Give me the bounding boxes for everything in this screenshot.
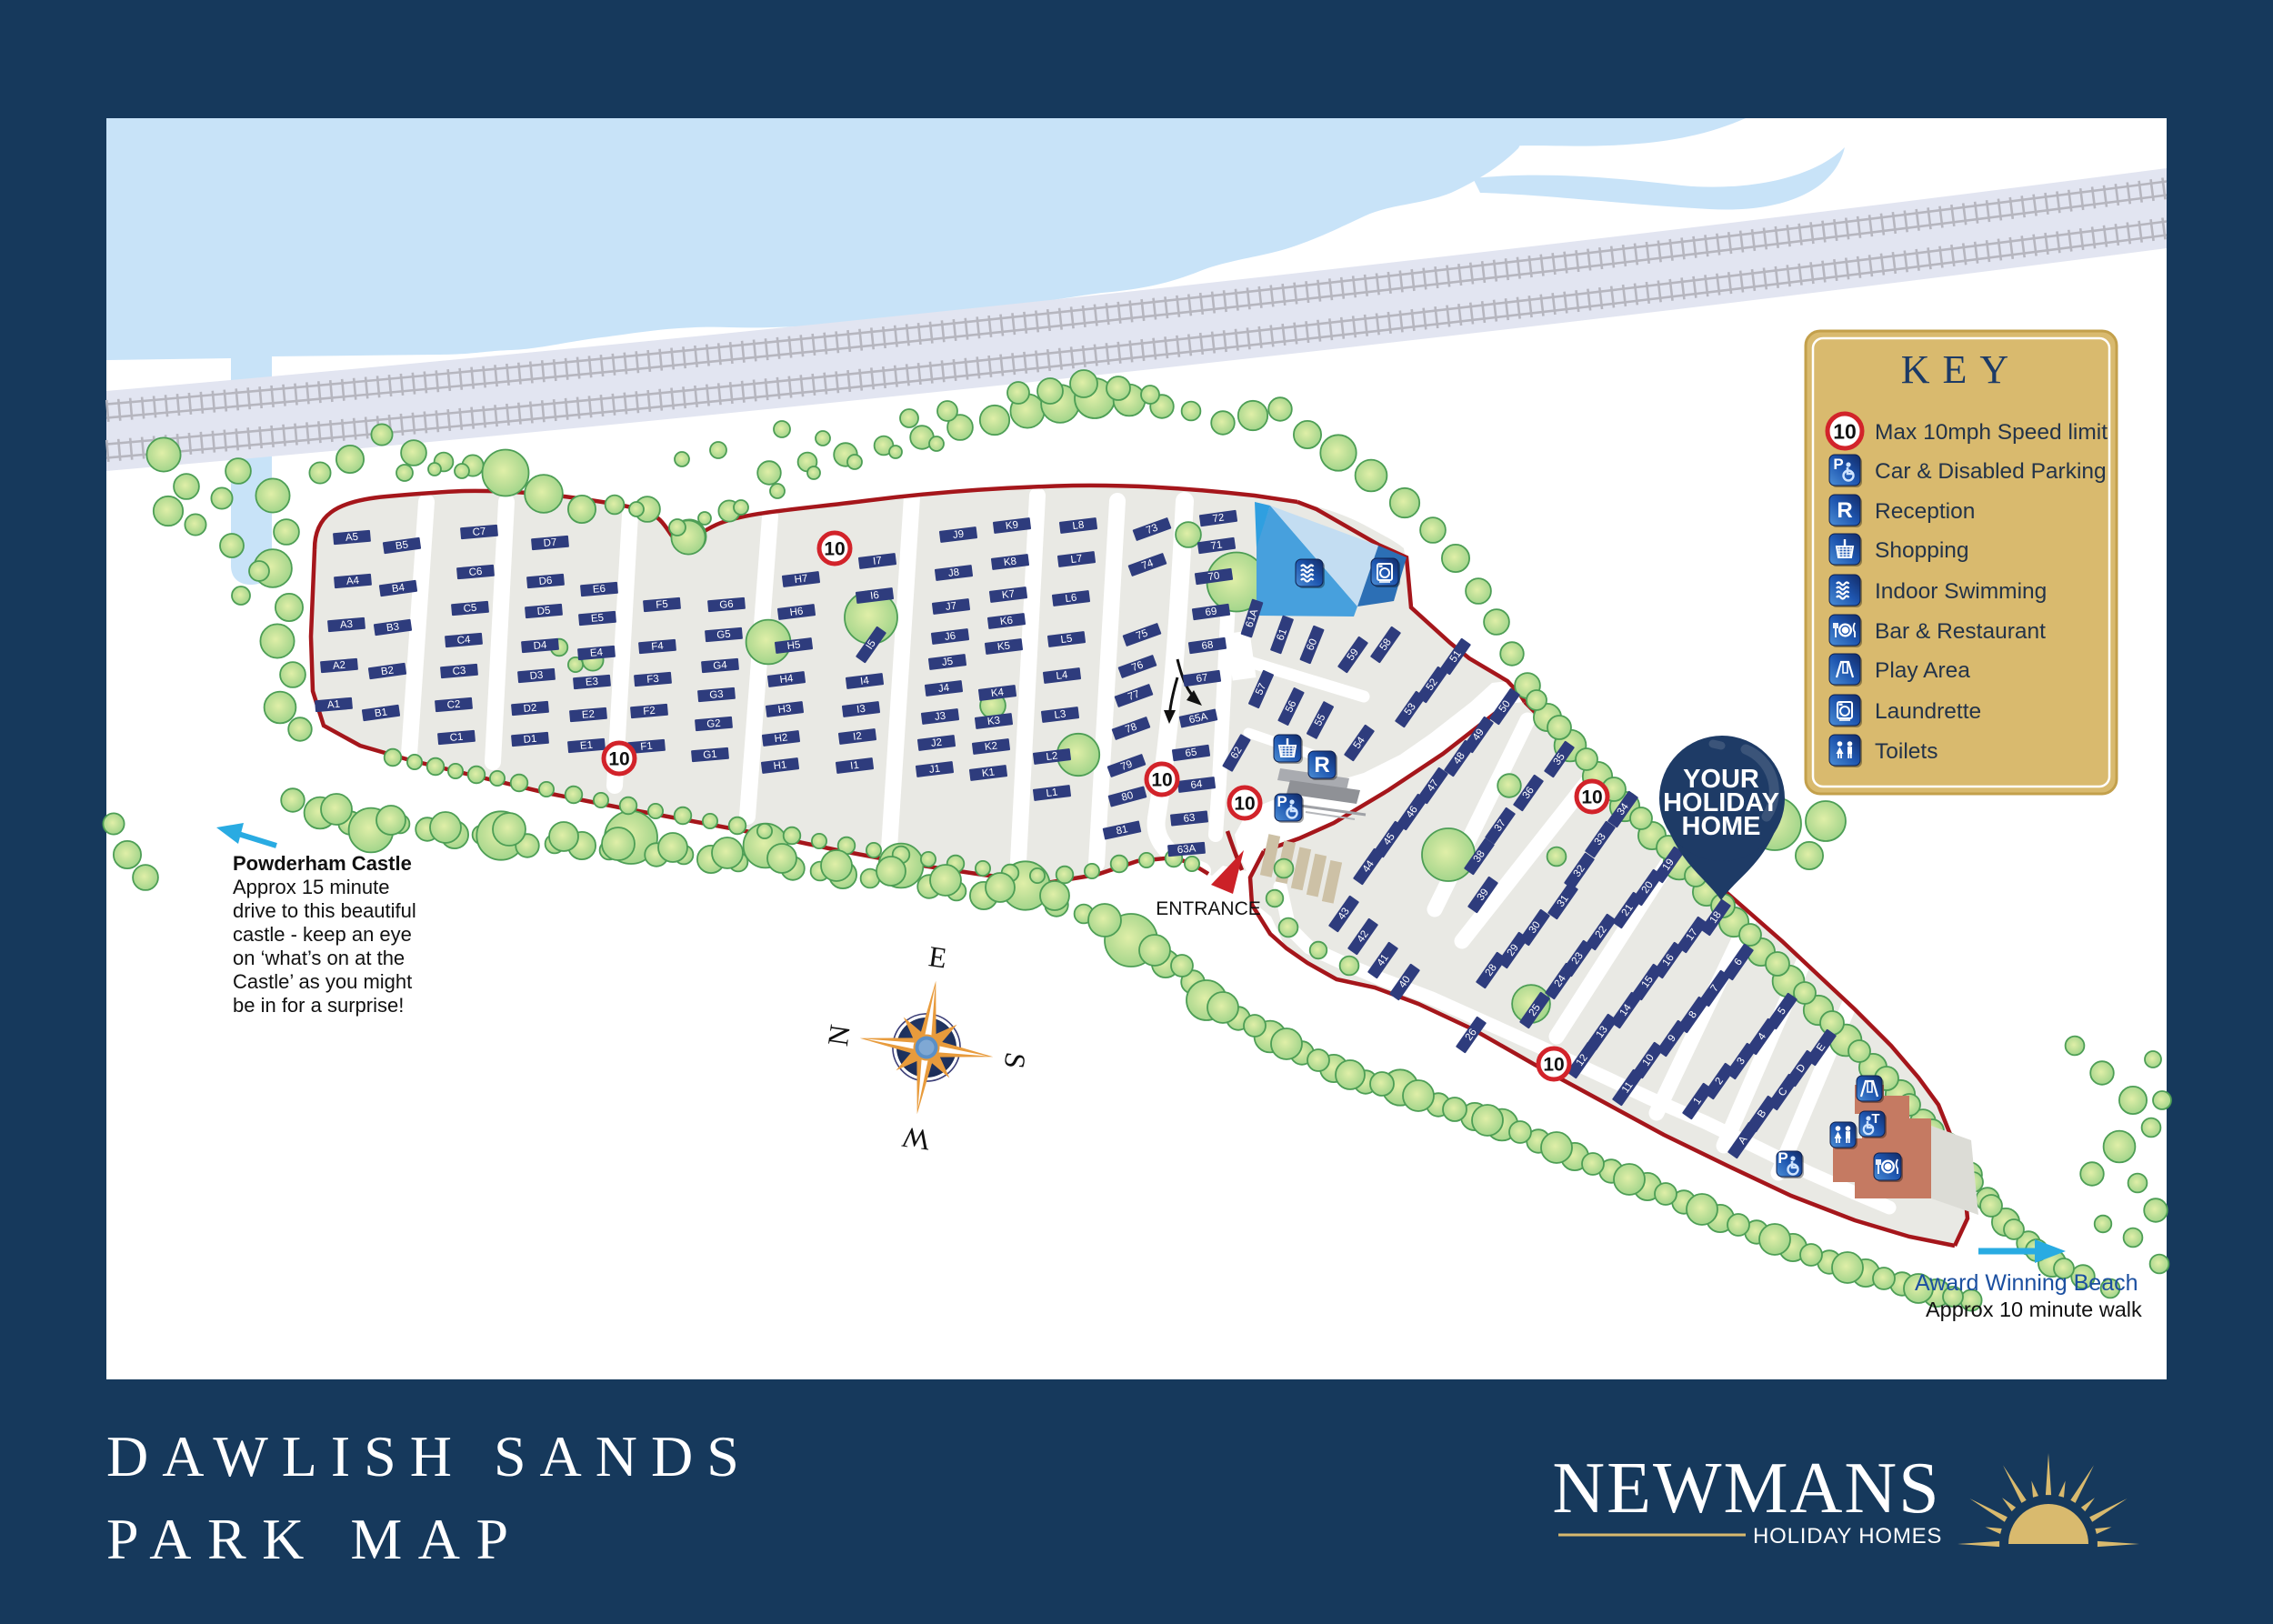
svg-text:E4: E4 bbox=[589, 647, 604, 659]
svg-text:L3: L3 bbox=[1054, 709, 1066, 721]
svg-text:J5: J5 bbox=[941, 657, 954, 668]
svg-text:68: 68 bbox=[1201, 639, 1214, 652]
svg-text:C1: C1 bbox=[449, 732, 464, 744]
svg-text:63: 63 bbox=[1183, 813, 1196, 825]
svg-text:H7: H7 bbox=[794, 573, 808, 586]
svg-text:Award Winning Beach: Award Winning Beach bbox=[1915, 1270, 2138, 1296]
svg-text:J9: J9 bbox=[952, 529, 965, 541]
svg-text:G6: G6 bbox=[719, 599, 734, 611]
svg-text:P: P bbox=[1777, 1149, 1787, 1167]
svg-text:C5: C5 bbox=[463, 603, 477, 615]
svg-text:J4: J4 bbox=[937, 683, 950, 695]
svg-text:E3: E3 bbox=[585, 677, 598, 688]
svg-text:I7: I7 bbox=[873, 556, 883, 567]
svg-text:Reception: Reception bbox=[1875, 499, 1975, 524]
svg-text:P: P bbox=[1833, 456, 1843, 473]
svg-text:C4: C4 bbox=[456, 635, 471, 647]
svg-text:K2: K2 bbox=[984, 740, 997, 753]
svg-text:10: 10 bbox=[824, 539, 845, 560]
svg-text:Play Area: Play Area bbox=[1875, 658, 1970, 683]
svg-text:Approx 10 minute walk: Approx 10 minute walk bbox=[1926, 1298, 2142, 1321]
svg-text:64: 64 bbox=[1190, 778, 1204, 791]
svg-text:HOME: HOME bbox=[1682, 812, 1761, 841]
svg-text:63A: 63A bbox=[1177, 843, 1197, 856]
svg-text:D4: D4 bbox=[533, 640, 547, 652]
svg-text:H5: H5 bbox=[786, 639, 801, 652]
svg-text:D6: D6 bbox=[538, 576, 553, 587]
svg-text:N: N bbox=[821, 1023, 856, 1048]
svg-text:Indoor Swimming: Indoor Swimming bbox=[1875, 579, 2047, 604]
svg-text:B3: B3 bbox=[386, 621, 400, 634]
svg-text:T: T bbox=[1871, 1111, 1879, 1127]
svg-text:F4: F4 bbox=[651, 641, 665, 653]
svg-text:J1: J1 bbox=[928, 764, 941, 776]
svg-text:D5: D5 bbox=[536, 606, 551, 617]
svg-text:L1: L1 bbox=[1046, 787, 1058, 799]
svg-text:be in for a surprise!: be in for a surprise! bbox=[233, 994, 404, 1017]
svg-text:71: 71 bbox=[1210, 539, 1223, 552]
svg-text:Castle’ as you might: Castle’ as you might bbox=[233, 970, 412, 993]
svg-text:10: 10 bbox=[1833, 419, 1857, 443]
svg-text:E6: E6 bbox=[592, 584, 606, 596]
svg-text:Car & Disabled Parking: Car & Disabled Parking bbox=[1875, 459, 2107, 484]
svg-text:A3: A3 bbox=[339, 619, 353, 631]
svg-text:K6: K6 bbox=[999, 615, 1013, 627]
svg-text:69: 69 bbox=[1205, 606, 1217, 618]
svg-text:G2: G2 bbox=[706, 718, 721, 730]
svg-text:E2: E2 bbox=[581, 709, 595, 721]
svg-text:B1: B1 bbox=[374, 707, 388, 719]
svg-text:D7: D7 bbox=[543, 537, 557, 549]
svg-text:G1: G1 bbox=[703, 749, 717, 761]
svg-text:L5: L5 bbox=[1060, 634, 1073, 646]
svg-text:Toilets: Toilets bbox=[1875, 739, 1938, 764]
svg-text:G3: G3 bbox=[709, 689, 724, 701]
svg-text:K8: K8 bbox=[1003, 556, 1016, 568]
svg-text:67: 67 bbox=[1196, 672, 1208, 685]
svg-text:A1: A1 bbox=[326, 699, 340, 711]
svg-text:10: 10 bbox=[1151, 770, 1172, 791]
svg-text:K7: K7 bbox=[1001, 588, 1015, 601]
svg-text:Powderham Castle: Powderham Castle bbox=[233, 852, 412, 875]
svg-text:DAWLISH SANDS: DAWLISH SANDS bbox=[106, 1424, 753, 1489]
svg-text:65: 65 bbox=[1185, 747, 1197, 759]
svg-text:Max 10mph Speed limit: Max 10mph Speed limit bbox=[1875, 420, 2108, 445]
svg-text:D3: D3 bbox=[529, 670, 544, 682]
svg-text:L8: L8 bbox=[1072, 520, 1085, 532]
svg-text:10: 10 bbox=[608, 749, 629, 770]
svg-text:F2: F2 bbox=[643, 706, 656, 717]
svg-text:ENTRANCE: ENTRANCE bbox=[1156, 898, 1261, 919]
svg-text:Laundrette: Laundrette bbox=[1875, 699, 1981, 724]
svg-text:drive to this beautiful: drive to this beautiful bbox=[233, 899, 416, 922]
svg-text:A2: A2 bbox=[332, 660, 345, 672]
svg-text:C3: C3 bbox=[452, 666, 466, 677]
svg-text:E5: E5 bbox=[590, 613, 604, 625]
svg-text:J3: J3 bbox=[934, 711, 946, 723]
svg-text:C2: C2 bbox=[446, 699, 461, 711]
svg-text:K9: K9 bbox=[1005, 519, 1018, 532]
svg-text:K1: K1 bbox=[981, 767, 995, 779]
svg-text:72: 72 bbox=[1212, 512, 1225, 525]
svg-text:A4: A4 bbox=[345, 576, 360, 587]
svg-text:B5: B5 bbox=[395, 539, 409, 552]
svg-text:F3: F3 bbox=[646, 674, 659, 686]
svg-text:PARK MAP: PARK MAP bbox=[106, 1507, 525, 1571]
svg-text:Shopping: Shopping bbox=[1875, 538, 1969, 563]
svg-text:castle - keep an eye: castle - keep an eye bbox=[233, 923, 412, 946]
svg-text:R: R bbox=[1837, 498, 1852, 523]
svg-text:P: P bbox=[1277, 793, 1287, 810]
svg-text:A5: A5 bbox=[345, 532, 358, 544]
svg-text:KEY: KEY bbox=[1901, 347, 2021, 392]
svg-text:B2: B2 bbox=[380, 665, 395, 677]
svg-text:F1: F1 bbox=[640, 741, 653, 753]
svg-text:J2: J2 bbox=[930, 737, 943, 749]
svg-text:G5: G5 bbox=[716, 629, 731, 641]
svg-text:I2: I2 bbox=[853, 731, 863, 743]
svg-text:L7: L7 bbox=[1070, 554, 1083, 566]
svg-text:D1: D1 bbox=[523, 734, 537, 746]
svg-text:10: 10 bbox=[1581, 787, 1602, 808]
svg-text:H3: H3 bbox=[777, 703, 792, 716]
svg-text:L2: L2 bbox=[1046, 751, 1058, 763]
svg-text:Bar & Restaurant: Bar & Restaurant bbox=[1875, 619, 2046, 644]
svg-text:R: R bbox=[1314, 753, 1329, 777]
svg-text:NEWMANS: NEWMANS bbox=[1552, 1449, 1940, 1529]
svg-text:J6: J6 bbox=[944, 631, 956, 643]
svg-text:J8: J8 bbox=[947, 567, 960, 579]
svg-text:F5: F5 bbox=[656, 599, 668, 611]
svg-text:E1: E1 bbox=[579, 740, 593, 752]
svg-text:K4: K4 bbox=[990, 687, 1005, 699]
svg-text:on ‘what’s on at the: on ‘what’s on at the bbox=[233, 947, 405, 969]
svg-text:H2: H2 bbox=[774, 732, 788, 745]
svg-text:H1: H1 bbox=[773, 759, 787, 772]
svg-text:G4: G4 bbox=[713, 660, 728, 672]
svg-text:K5: K5 bbox=[996, 640, 1010, 653]
svg-text:H6: H6 bbox=[789, 606, 804, 618]
svg-text:70: 70 bbox=[1207, 570, 1220, 583]
svg-text:C6: C6 bbox=[468, 566, 483, 578]
svg-text:H4: H4 bbox=[779, 673, 795, 686]
svg-text:L6: L6 bbox=[1065, 593, 1077, 605]
svg-text:L4: L4 bbox=[1056, 669, 1069, 682]
svg-text:HOLIDAY HOMES: HOLIDAY HOMES bbox=[1753, 1524, 1942, 1549]
svg-text:10: 10 bbox=[1543, 1055, 1564, 1076]
svg-text:I6: I6 bbox=[870, 590, 880, 602]
svg-text:I1: I1 bbox=[850, 760, 860, 772]
svg-text:D2: D2 bbox=[523, 703, 537, 715]
svg-text:J7: J7 bbox=[945, 601, 957, 613]
svg-text:Approx 15 minute: Approx 15 minute bbox=[233, 876, 389, 898]
svg-text:W: W bbox=[899, 1121, 932, 1158]
svg-text:I3: I3 bbox=[856, 704, 866, 716]
svg-text:B4: B4 bbox=[391, 582, 406, 595]
svg-text:10: 10 bbox=[1234, 794, 1255, 815]
svg-text:C7: C7 bbox=[472, 526, 486, 538]
svg-text:K3: K3 bbox=[986, 715, 1000, 727]
